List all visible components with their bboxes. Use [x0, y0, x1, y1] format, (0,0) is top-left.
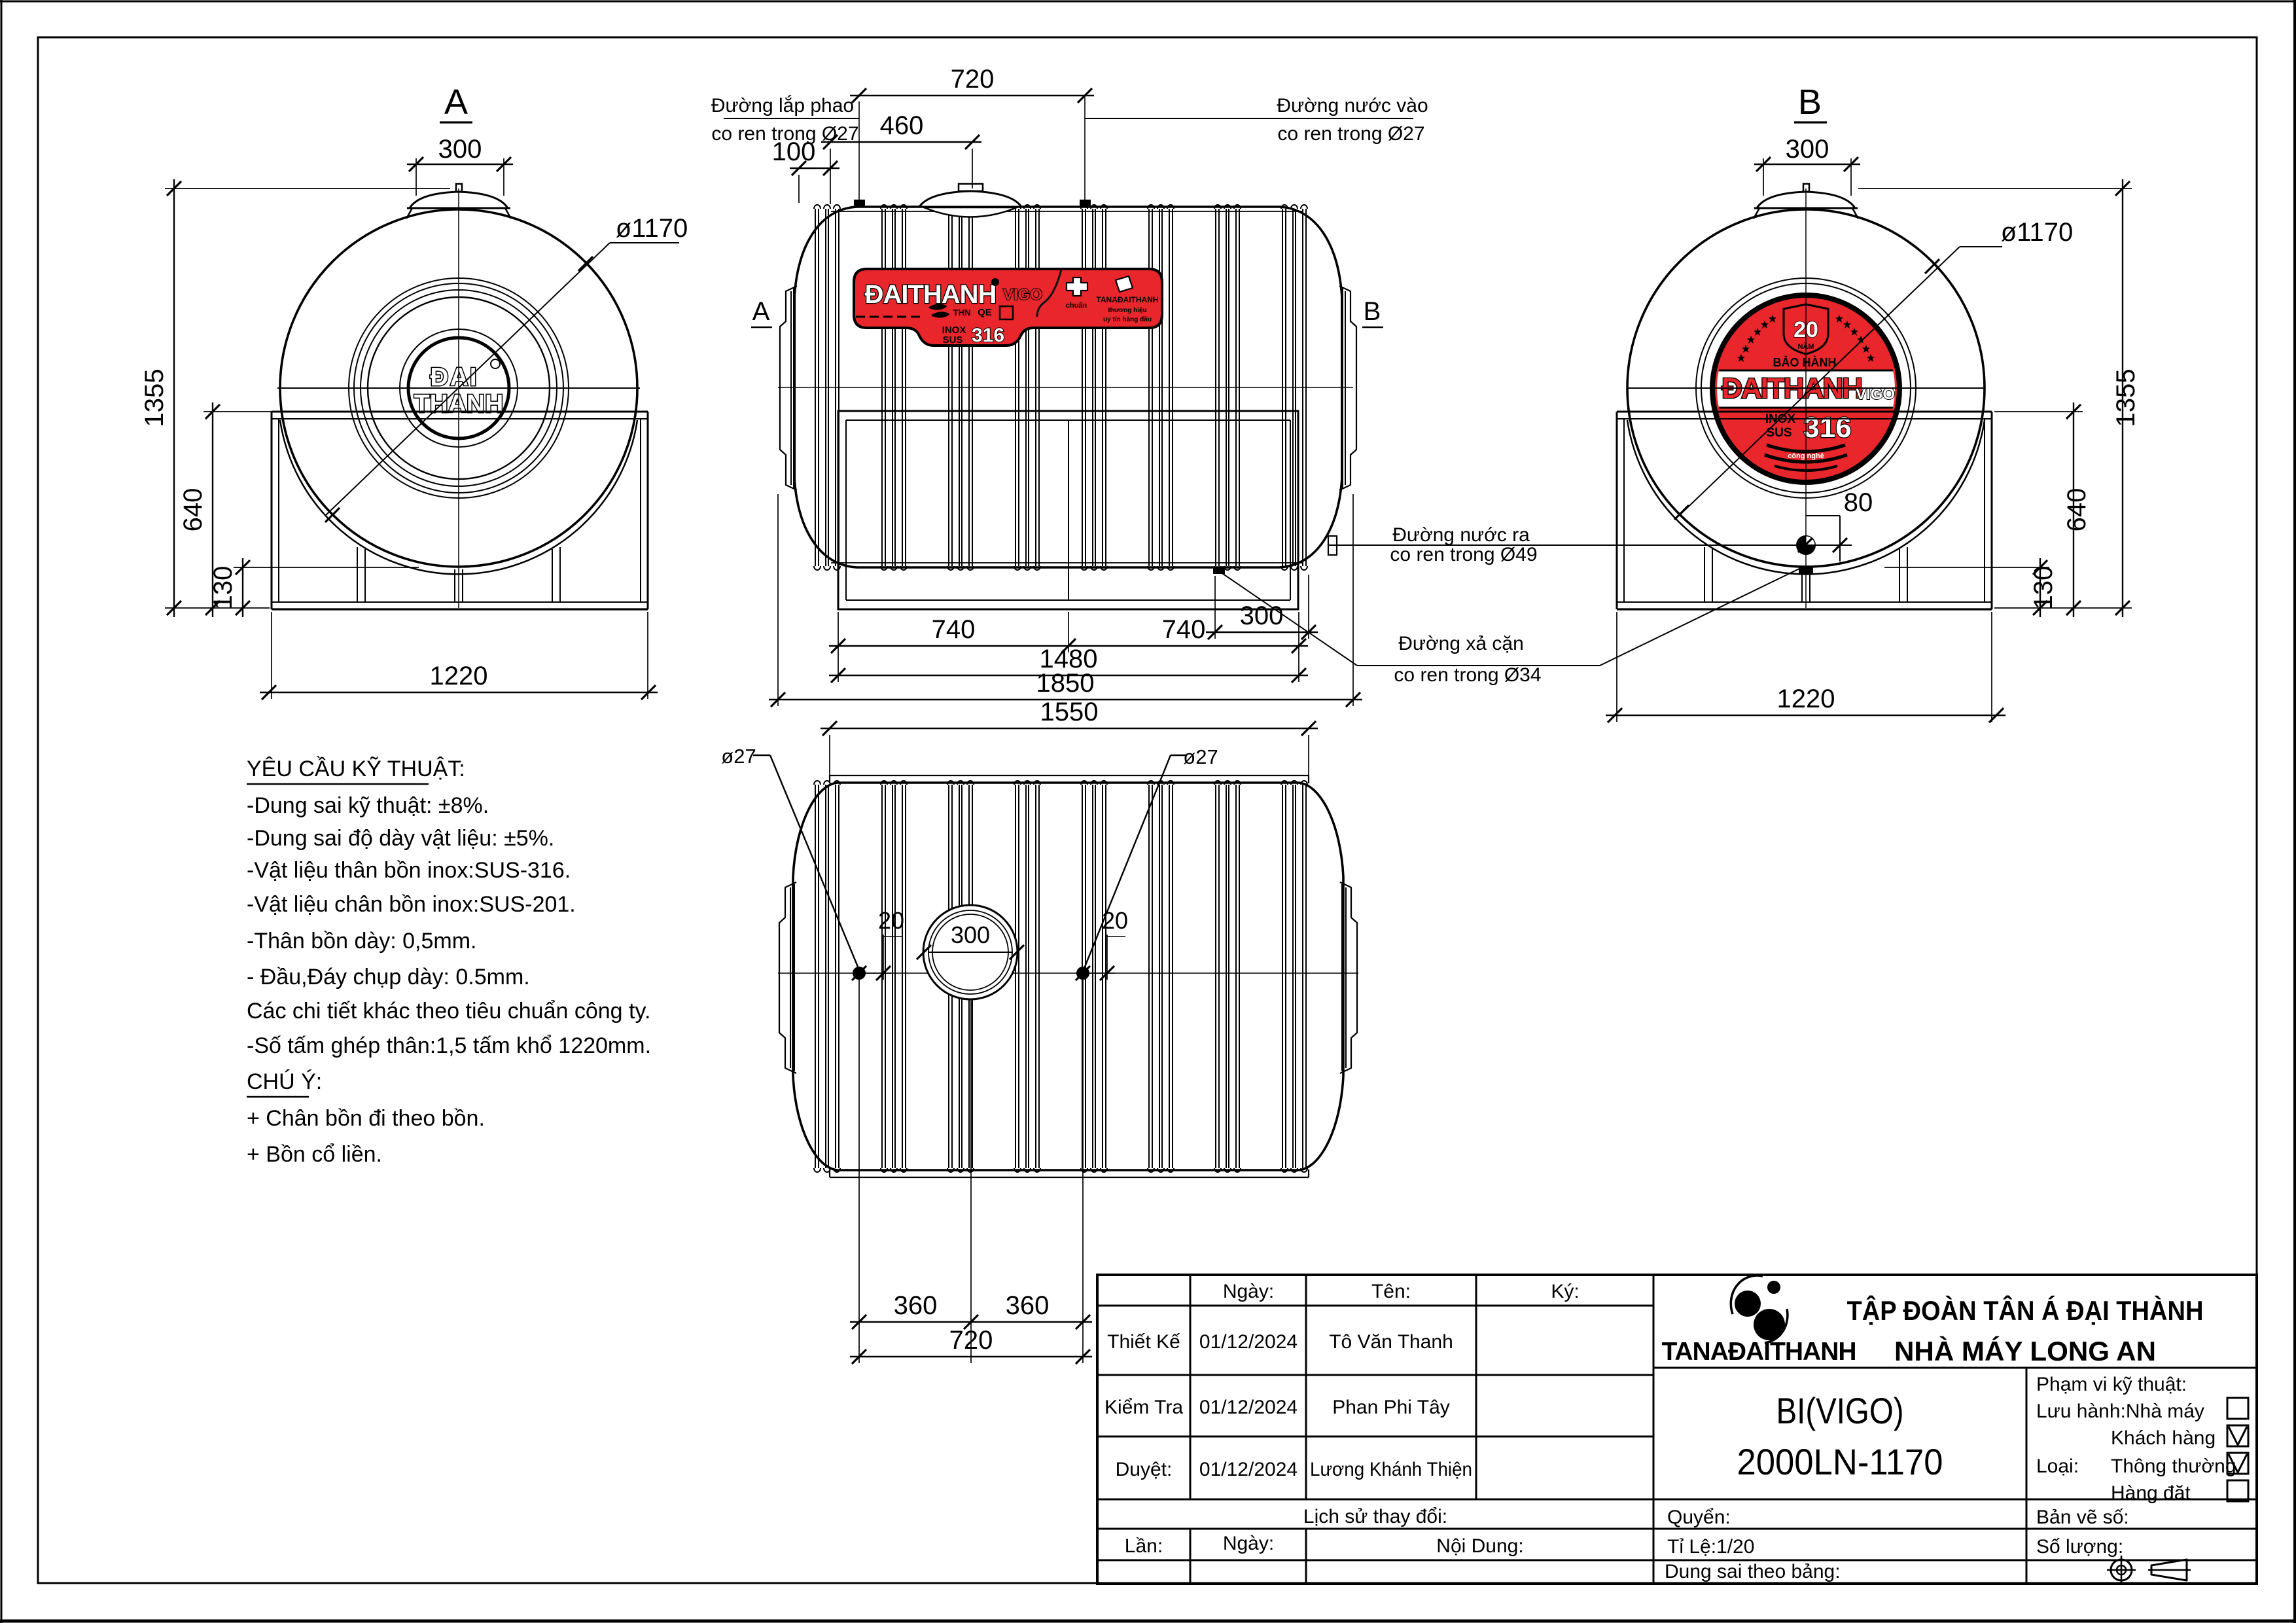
svg-text:1220: 1220: [430, 662, 488, 690]
svg-text:20: 20: [878, 907, 904, 934]
svg-text:co ren trong Ø34: co ren trong Ø34: [1394, 664, 1541, 686]
svg-text:THN: THN: [953, 308, 971, 317]
svg-text:1220: 1220: [1777, 685, 1835, 713]
svg-text:720: 720: [949, 1326, 993, 1355]
svg-text:Hàng đăt: Hàng đăt: [2111, 1482, 2191, 1504]
svg-text:ĐAITHANH: ĐAITHANH: [865, 280, 997, 309]
svg-text:Lần:: Lần:: [1125, 1535, 1163, 1557]
svg-text:Đường lắp phao: Đường lắp phao: [711, 95, 854, 116]
svg-text:ø1170: ø1170: [616, 214, 688, 243]
svg-text:Duyệt:: Duyệt:: [1116, 1459, 1173, 1480]
svg-text:316: 316: [972, 325, 1004, 346]
svg-text:Phạm vi kỹ thuật:: Phạm vi kỹ thuật:: [2036, 1374, 2187, 1395]
svg-text:B: B: [1364, 297, 1381, 326]
svg-text:Thông thường: Thông thường: [2111, 1455, 2236, 1477]
svg-text:740: 740: [1162, 615, 1206, 644]
svg-text:1355: 1355: [2111, 369, 2140, 427]
svg-text:chuẩn: chuẩn: [1066, 302, 1087, 310]
svg-text:300: 300: [438, 135, 482, 164]
svg-text:B: B: [1798, 82, 1822, 122]
svg-text:360: 360: [1006, 1291, 1050, 1320]
svg-text:Nội Dung:: Nội Dung:: [1436, 1535, 1523, 1557]
svg-text:A: A: [444, 82, 468, 122]
svg-text:SUS: SUS: [943, 334, 963, 346]
svg-text:thương hiệu: thương hiệu: [1108, 307, 1146, 314]
svg-text:Phan Phi Tây: Phan Phi Tây: [1332, 1397, 1450, 1418]
svg-text:-Vật liệu chân bồn inox:SUS-20: -Vật liệu chân bồn inox:SUS-201.: [247, 892, 576, 917]
svg-text:640: 640: [2062, 488, 2091, 532]
svg-text:- Đầu,Đáy chụp dày: 0.5mm.: - Đầu,Đáy chụp dày: 0.5mm.: [247, 965, 530, 990]
svg-text:300: 300: [1786, 135, 1829, 164]
svg-text:ø27: ø27: [1183, 745, 1218, 768]
svg-text:-Vật liệu thân bồn inox:SUS-31: -Vật liệu thân bồn inox:SUS-316.: [247, 858, 571, 883]
svg-text:1850: 1850: [1036, 669, 1095, 698]
svg-text:co ren trong Ø27: co ren trong Ø27: [1277, 123, 1424, 145]
svg-text:-Dung sai độ dày vật liệu: ±5%: -Dung sai độ dày vật liệu: ±5%.: [247, 826, 554, 851]
svg-text:130: 130: [209, 566, 238, 610]
svg-text:Lương Khánh Thiện: Lương Khánh Thiện: [1310, 1459, 1472, 1480]
svg-text:20: 20: [1102, 907, 1128, 934]
svg-text:Tô Văn Thanh: Tô Văn Thanh: [1329, 1331, 1453, 1353]
svg-text:01/12/2024: 01/12/2024: [1199, 1331, 1298, 1353]
svg-text:Ký:: Ký:: [1551, 1281, 1579, 1302]
svg-text:+ Bồn cổ liền.: + Bồn cổ liền.: [247, 1142, 382, 1167]
svg-text:Số lượng:: Số lượng:: [2036, 1536, 2123, 1558]
svg-text:Ngày:: Ngày:: [1223, 1533, 1274, 1554]
svg-text:BI(VIGO): BI(VIGO): [1776, 1390, 1904, 1431]
svg-text:NHÀ MÁY LONG AN: NHÀ MÁY LONG AN: [1894, 1336, 2156, 1366]
svg-text:-Dung sai kỹ thuật: ±8%.: -Dung sai kỹ thuật: ±8%.: [247, 793, 489, 818]
svg-text:Khách hàng: Khách hàng: [2111, 1427, 2216, 1449]
svg-text:Ngày:: Ngày:: [1223, 1281, 1274, 1302]
svg-text:2000LN-1170: 2000LN-1170: [1737, 1441, 1943, 1482]
svg-text:1550: 1550: [1040, 698, 1099, 726]
svg-text:130: 130: [2029, 566, 2058, 610]
svg-text:Loại:: Loại:: [2036, 1455, 2079, 1477]
svg-text:460: 460: [880, 111, 924, 140]
svg-text:100: 100: [772, 137, 816, 166]
svg-text:Tỉ Lệ:1/20: Tỉ Lệ:1/20: [1667, 1536, 1754, 1558]
svg-text:80: 80: [1844, 488, 1873, 517]
svg-text:TẬP ĐOÀN TÂN Á ĐẠI THÀNH: TẬP ĐOÀN TÂN Á ĐẠI THÀNH: [1847, 1294, 2204, 1326]
svg-text:Lịch sử thay đổi:: Lịch sử thay đổi:: [1303, 1506, 1447, 1527]
svg-text:Đường xả cặn: Đường xả cặn: [1398, 633, 1524, 654]
svg-text:TANAĐAITHANH: TANAĐAITHANH: [1661, 1338, 1856, 1366]
svg-text:Thiết Kế: Thiết Kế: [1107, 1331, 1180, 1353]
svg-text:300: 300: [951, 921, 990, 948]
svg-text:01/12/2024: 01/12/2024: [1199, 1397, 1298, 1418]
svg-text:A: A: [752, 297, 770, 326]
svg-text:-Thân bồn dày: 0,5mm.: -Thân bồn dày: 0,5mm.: [247, 929, 477, 954]
svg-text:-Số tấm ghép thân:1,5 tấm khổ: -Số tấm ghép thân:1,5 tấm khổ 1220mm.: [247, 1033, 651, 1058]
svg-text:300: 300: [1240, 601, 1284, 630]
svg-text:Đường nước vào: Đường nước vào: [1277, 95, 1428, 116]
svg-text:Lưu hành:Nhà máy: Lưu hành:Nhà máy: [2036, 1400, 2204, 1422]
svg-text:co ren trong Ø49: co ren trong Ø49: [1390, 544, 1537, 565]
svg-text:Các chi tiết khác theo tiêu ch: Các chi tiết khác theo tiêu chuẩn công t…: [247, 999, 650, 1024]
svg-text:740: 740: [932, 615, 976, 644]
svg-text:CHÚ Ý:: CHÚ Ý:: [247, 1069, 322, 1094]
svg-text:uy tín hàng đầu: uy tín hàng đầu: [1103, 315, 1152, 323]
svg-text:Bản vẽ số:: Bản vẽ số:: [2036, 1507, 2129, 1528]
svg-text:Tên:: Tên:: [1371, 1281, 1411, 1302]
svg-text:316: 316: [1803, 412, 1851, 444]
svg-text:YÊU CẦU KỸ THUẬT:: YÊU CẦU KỸ THUẬT:: [247, 757, 465, 781]
svg-text:VIGO: VIGO: [1003, 286, 1042, 304]
svg-text:ø1170: ø1170: [2001, 218, 2073, 247]
svg-text:360: 360: [894, 1291, 938, 1320]
svg-text:Quyển:: Quyển:: [1667, 1507, 1731, 1528]
svg-text:+ Chân bồn đi theo bồn.: + Chân bồn đi theo bồn.: [247, 1106, 485, 1131]
svg-text:01/12/2024: 01/12/2024: [1199, 1459, 1298, 1480]
svg-text:640: 640: [179, 488, 207, 532]
svg-text:TANAĐAITHANH: TANAĐAITHANH: [1096, 295, 1158, 304]
svg-text:Kiểm Tra: Kiểm Tra: [1104, 1397, 1183, 1418]
svg-text:720: 720: [951, 65, 995, 94]
svg-text:1355: 1355: [140, 369, 169, 427]
svg-text:ø27: ø27: [721, 745, 756, 768]
svg-text:Đường nước ra: Đường nước ra: [1392, 524, 1530, 546]
svg-text:Dung sai theo bảng:: Dung sai theo bảng:: [1665, 1561, 1841, 1582]
svg-text:BẢO HÀNH: BẢO HÀNH: [1773, 355, 1837, 369]
svg-text:ĐAI: ĐAI: [430, 363, 478, 391]
svg-text:QE: QE: [978, 307, 992, 318]
